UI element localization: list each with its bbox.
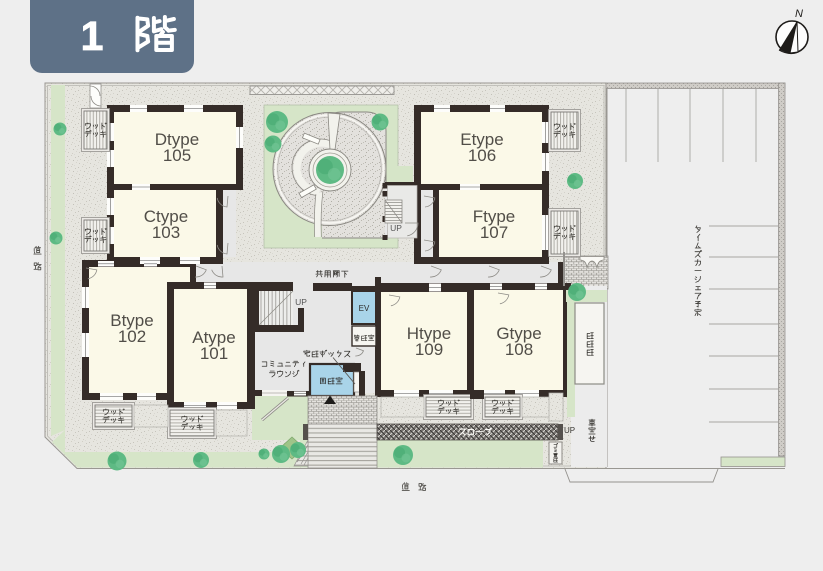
svg-text:EV: EV xyxy=(359,304,370,313)
svg-text:101: 101 xyxy=(200,344,228,363)
svg-text:UP: UP xyxy=(390,223,402,233)
svg-text:109: 109 xyxy=(415,340,443,359)
svg-text:102: 102 xyxy=(118,327,146,346)
svg-text:UP: UP xyxy=(564,426,575,435)
svg-text:108: 108 xyxy=(505,340,533,359)
svg-text:103: 103 xyxy=(152,223,180,242)
svg-text:1: 1 xyxy=(81,13,104,59)
svg-text:105: 105 xyxy=(163,146,191,165)
svg-text:107: 107 xyxy=(480,223,508,242)
svg-text:N: N xyxy=(795,8,803,20)
svg-text:106: 106 xyxy=(468,146,496,165)
svg-text:UP: UP xyxy=(295,297,307,307)
